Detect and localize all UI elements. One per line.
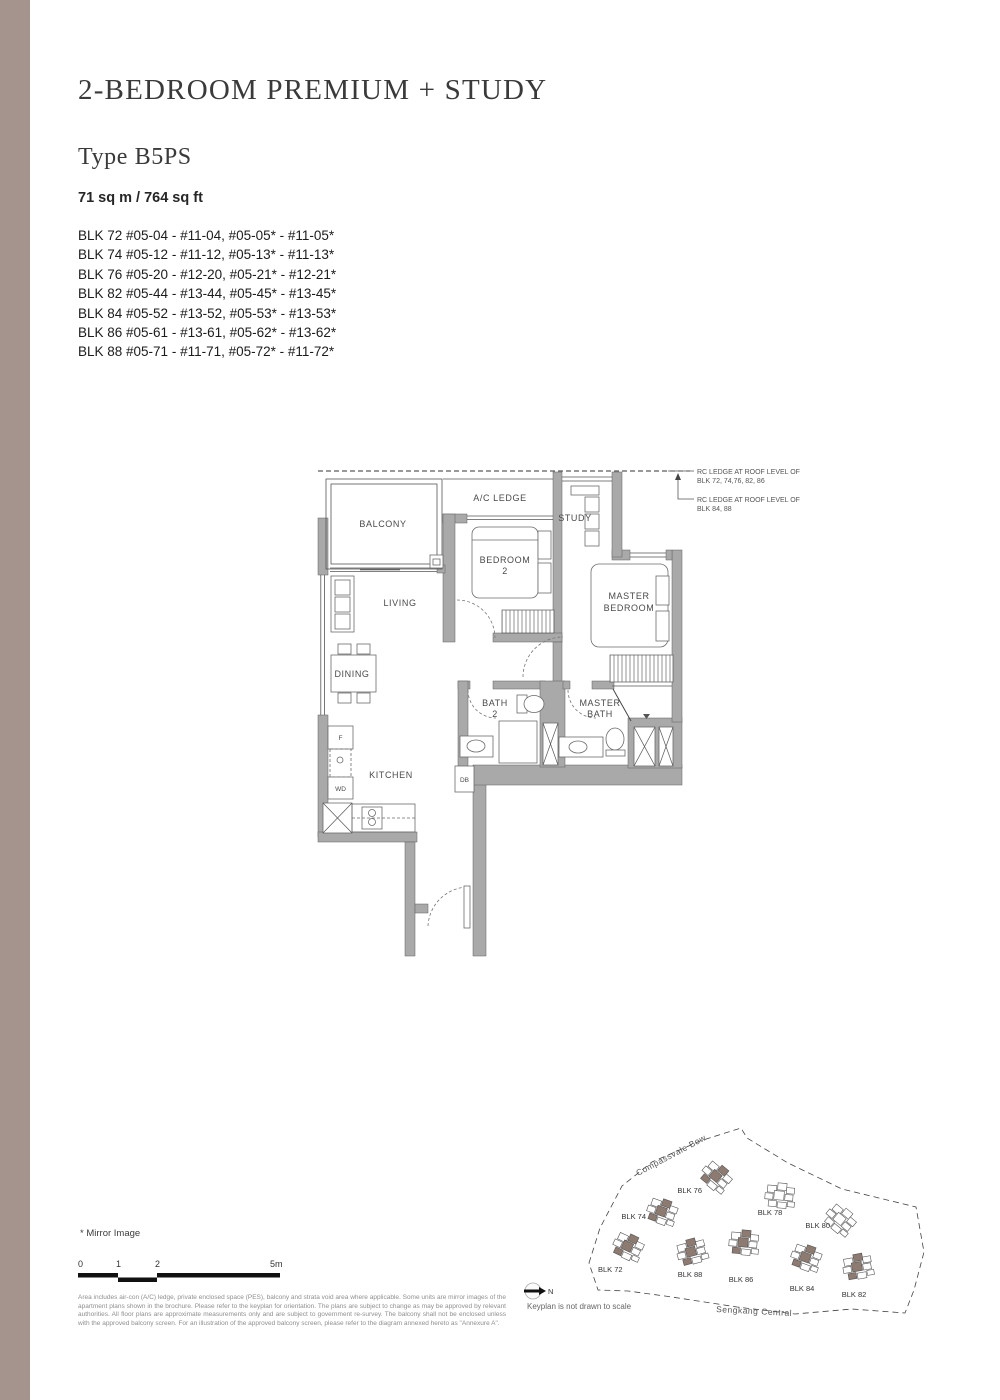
unit-stack-row: BLK 84 #05-52 - #13-52, #05-53* - #13-53… bbox=[78, 304, 336, 323]
unit-stack-row: BLK 72 #05-04 - #11-04, #05-05* - #11-05… bbox=[78, 226, 336, 245]
door-swings bbox=[428, 600, 596, 928]
unit-area-label: 71 sq m / 764 sq ft bbox=[78, 190, 203, 206]
blk-82-label: BLK 82 bbox=[842, 1290, 867, 1299]
blk-88-label: BLK 88 bbox=[678, 1270, 703, 1279]
master-bedroom-furniture bbox=[591, 564, 673, 682]
unit-stack-row: BLK 82 #05-44 - #13-44, #05-45* - #13-45… bbox=[78, 284, 336, 303]
master-bedroom-label-line1: MASTER bbox=[608, 591, 649, 601]
scale-bar: 0 1 2 5m bbox=[70, 1255, 300, 1290]
unit-stack-row: BLK 76 #05-20 - #12-20, #05-21* - #12-21… bbox=[78, 265, 336, 284]
keyplan-road-labels: Compassvale Bow Sengkang Central bbox=[634, 1132, 792, 1318]
bedroom2-label-line2: 2 bbox=[502, 566, 508, 576]
brochure-page: 2-BEDROOM PREMIUM + STUDY Type B5PS 71 s… bbox=[0, 0, 1000, 1400]
unit-stack-row: BLK 74 #05-12 - #11-12, #05-13* - #11-13… bbox=[78, 245, 336, 264]
master-bath-label-line1: MASTER bbox=[579, 698, 620, 708]
balcony-label: BALCONY bbox=[359, 519, 406, 529]
keyplan: Compassvale Bow Sengkang Central BLK 76 … bbox=[520, 1115, 940, 1330]
road-label-bottom: Sengkang Central bbox=[716, 1304, 792, 1318]
rc-ledge-notes: RC LEDGE AT ROOF LEVEL OF BLK 72, 74,76,… bbox=[697, 469, 800, 513]
blk-74-label: BLK 74 bbox=[621, 1212, 646, 1221]
kitchen-label: KITCHEN bbox=[369, 770, 413, 780]
bath2-fixtures bbox=[460, 695, 558, 765]
unit-stack-row: BLK 86 #05-61 - #13-61, #05-62* - #13-62… bbox=[78, 323, 336, 342]
rc-note-2-line1: RC LEDGE AT ROOF LEVEL OF bbox=[697, 497, 800, 504]
mirror-image-note: * Mirror Image bbox=[80, 1228, 140, 1239]
washer-dryer-label: WD bbox=[335, 786, 346, 793]
blk-86-label: BLK 86 bbox=[729, 1275, 754, 1284]
bath2-label-line2: 2 bbox=[492, 709, 498, 719]
blk-76-label: BLK 76 bbox=[677, 1186, 702, 1195]
bedroom2-label-line1: BEDROOM bbox=[480, 555, 531, 565]
left-accent-strip bbox=[0, 0, 30, 1400]
scale-tick-5m: 5m bbox=[270, 1259, 283, 1269]
rc-note-2-line2: BLK 84, 88 bbox=[697, 506, 732, 513]
master-bath-label-line2: BATH bbox=[587, 709, 613, 719]
living-label: LIVING bbox=[383, 598, 416, 608]
rc-note-1-line2: BLK 72, 74,76, 82, 86 bbox=[697, 478, 765, 485]
unit-stack-list: BLK 72 #05-04 - #11-04, #05-05* - #11-05… bbox=[78, 226, 336, 362]
scale-tick-0: 0 bbox=[78, 1259, 83, 1269]
bath2-label-line1: BATH bbox=[482, 698, 508, 708]
living-furniture bbox=[331, 576, 354, 632]
master-bedroom-label-line2: BEDROOM bbox=[604, 603, 655, 613]
ac-ledge-label: A/C LEDGE bbox=[473, 493, 526, 503]
study-label: STUDY bbox=[558, 513, 592, 523]
disclaimer-text: Area includes air-con (A/C) ledge, priva… bbox=[78, 1294, 506, 1328]
keyplan-block-clusters bbox=[609, 1157, 875, 1281]
page-title: 2-BEDROOM PREMIUM + STUDY bbox=[78, 74, 547, 107]
dining-label: DINING bbox=[334, 669, 369, 679]
unit-stack-row: BLK 88 #05-71 - #11-71, #05-72* - #11-72… bbox=[78, 342, 336, 361]
fridge-label: F bbox=[339, 735, 343, 742]
north-letter: N bbox=[548, 1287, 553, 1296]
blk-80-label: BLK 80 bbox=[805, 1221, 830, 1230]
blk-84-label: BLK 84 bbox=[790, 1284, 815, 1293]
floorplan-drawing: RC LEDGE AT ROOF LEVEL OF BLK 72, 74,76,… bbox=[300, 450, 1000, 970]
scale-tick-1: 1 bbox=[116, 1259, 121, 1269]
scale-tick-2: 2 bbox=[155, 1259, 160, 1269]
north-arrow-icon: N bbox=[524, 1283, 553, 1299]
site-boundary bbox=[589, 1128, 924, 1314]
road-label-top: Compassvale Bow bbox=[634, 1132, 708, 1178]
blk-78-label: BLK 78 bbox=[758, 1208, 783, 1217]
db-label: DB bbox=[460, 777, 469, 784]
rc-note-1-line1: RC LEDGE AT ROOF LEVEL OF bbox=[697, 469, 800, 476]
keyplan-note: Keyplan is not drawn to scale bbox=[527, 1302, 632, 1311]
blk-72-label: BLK 72 bbox=[598, 1265, 623, 1274]
unit-type-label: Type B5PS bbox=[78, 144, 192, 171]
